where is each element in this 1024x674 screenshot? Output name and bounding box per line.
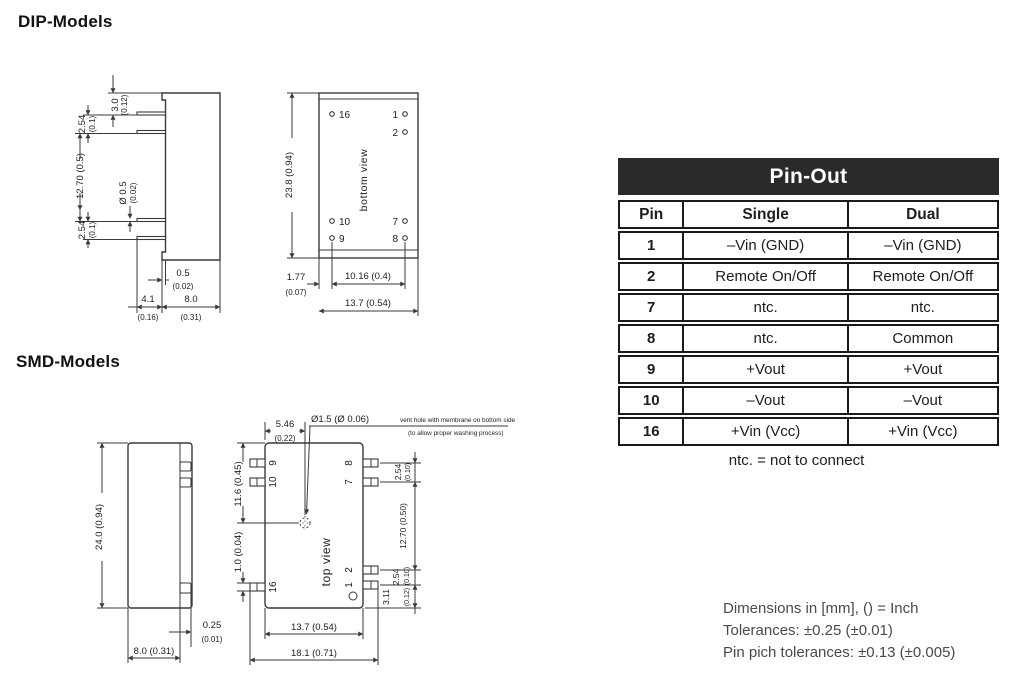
pin-label-10: 10: [268, 476, 279, 488]
cell-single: +Vin (Vcc): [684, 417, 848, 446]
pin-label-7: 7: [344, 479, 355, 485]
pin-label-2: 2: [392, 128, 398, 139]
vent-hole-note: vent hole with membrane on bottom side: [400, 417, 516, 424]
cell-pin: 16: [618, 417, 684, 446]
pin-label-16: 16: [268, 581, 279, 593]
pin-hole-2: [403, 130, 408, 135]
dim-5.46-inch: (0.22): [275, 434, 296, 443]
cell-dual: Common: [849, 324, 999, 353]
dim-2.54-top: 2.54: [77, 115, 88, 134]
pinout-table: Pin Single Dual 1 –Vin (GND) –Vin (GND) …: [618, 198, 999, 448]
table-row: 10 –Vout –Vout: [618, 386, 999, 415]
dip-pin: [137, 112, 166, 115]
pin-label-8: 8: [344, 460, 355, 466]
table-row: 16 +Vin (Vcc) +Vin (Vcc): [618, 417, 999, 446]
dim-8.0: 8.0 (0.31): [134, 646, 175, 657]
dim-2.54-top: 2.54: [393, 463, 403, 480]
cell-pin: 10: [618, 386, 684, 415]
dim-23.8: 23.8 (0.94): [284, 152, 295, 198]
dip-pin: [137, 131, 166, 134]
pin-label-10: 10: [339, 217, 351, 228]
pin-hole-1: [403, 112, 408, 117]
dim-1.77-inch: (0.07): [286, 288, 307, 297]
pin-hole-8: [403, 236, 408, 241]
dim-2.54-top-inch: (0.1): [88, 115, 97, 132]
dim-13.7: 13.7 (0.54): [345, 298, 391, 309]
dim-12.70: 12.70 (0.5): [75, 153, 86, 199]
cell-dual: ntc.: [849, 293, 999, 322]
vent-hole-note2: (to allow proper washing process): [408, 430, 504, 437]
pin-label-8: 8: [392, 234, 398, 245]
note-units: Dimensions in [mm], () = Inch: [723, 598, 955, 620]
dimension-notes: Dimensions in [mm], () = Inch Tolerances…: [723, 598, 955, 664]
pinout-header-row: Pin Single Dual: [618, 200, 999, 229]
col-header-dual: Dual: [849, 200, 999, 229]
dim-2.54-bottom-inch: (0.1): [88, 221, 97, 238]
pin-hole-9: [330, 236, 335, 241]
smd-pad: [180, 478, 191, 487]
cell-dual: –Vin (GND): [849, 231, 999, 260]
table-row: 7 ntc. ntc.: [618, 293, 999, 322]
dip-pin: [137, 237, 166, 240]
cell-pin: 8: [618, 324, 684, 353]
dim-5.46: 5.46: [276, 419, 295, 430]
dim-3.0-inch: (0.12): [120, 94, 129, 115]
dim-pin-diameter: Ø 0.5: [118, 181, 129, 204]
dim-12.70: 12.70 (0.50): [398, 503, 408, 549]
smd-pad: [180, 462, 191, 471]
dim-2.54-top-inch: (0.10): [405, 463, 412, 481]
pin-label-1: 1: [392, 110, 398, 121]
dip-side-body: [137, 93, 220, 260]
pin-label-2: 2: [344, 567, 355, 573]
cell-dual: –Vout: [849, 386, 999, 415]
dim-1.77: 1.77: [287, 272, 306, 283]
bottom-view-label: bottom view: [358, 149, 370, 212]
col-header-single: Single: [684, 200, 848, 229]
cell-single: +Vout: [684, 355, 848, 384]
dim-3.11: 3.11: [381, 589, 391, 605]
smd-side-body: [128, 443, 192, 608]
dip-bottom-view-drawing: 16 1 2 10 9 7 8 bottom view: [270, 60, 460, 360]
smd-models-heading: SMD-Models: [16, 352, 120, 372]
note-tolerances: Tolerances: ±0.25 (±0.01): [723, 620, 955, 642]
smd-pad: [180, 583, 191, 593]
cell-single: Remote On/Off: [684, 262, 848, 291]
cell-pin: 1: [618, 231, 684, 260]
dim-2.54-bottom: 2.54: [77, 221, 88, 240]
dim-8.0: 8.0: [184, 294, 197, 305]
dim-2.54-bottom: 2.54: [391, 568, 401, 585]
dip-pin: [137, 219, 166, 222]
pin-hole-7: [403, 219, 408, 224]
dim-0.5-inch: (0.02): [173, 282, 194, 291]
dim-2.54-bottom-inch: (0.10): [404, 567, 411, 585]
dim-4.1: 4.1: [141, 294, 154, 305]
ntc-footnote: ntc. = not to connect: [606, 452, 987, 469]
cell-single: –Vin (GND): [684, 231, 848, 260]
pinout-table-container: Pin-Out Pin Single Dual 1 –Vin (GND) –Vi…: [618, 158, 999, 469]
dim-0.5: 0.5: [176, 268, 189, 279]
pin-label-9: 9: [268, 460, 279, 466]
cell-pin: 9: [618, 355, 684, 384]
pin-label-16: 16: [339, 110, 351, 121]
pin-label-7: 7: [392, 217, 398, 228]
dip-models-heading: DIP-Models: [18, 12, 113, 32]
dim-24.0: 24.0 (0.94): [95, 504, 105, 550]
dim-1.0: 1.0 (0.04): [233, 532, 244, 573]
col-header-pin: Pin: [618, 200, 684, 229]
pin-hole-16: [330, 112, 335, 117]
cell-dual: Remote On/Off: [849, 262, 999, 291]
smd-side-view-drawing: 24.0 (0.94) 0.25 (0.01) 8.0 (0.31): [95, 435, 235, 670]
dim-0.25-inch: (0.01): [202, 635, 223, 644]
datasheet-page: DIP-Models: [0, 0, 1024, 674]
dim-pin-diameter-inch: (0.02): [129, 182, 138, 203]
cell-dual: +Vout: [849, 355, 999, 384]
cell-pin: 2: [618, 262, 684, 291]
top-view-label: top view: [319, 538, 333, 587]
smd-top-view-drawing: 9 10 16 8 7 2 1 top view: [230, 400, 520, 674]
cell-single: ntc.: [684, 293, 848, 322]
dim-8.0-inch: (0.31): [181, 313, 202, 322]
table-row: 2 Remote On/Off Remote On/Off: [618, 262, 999, 291]
dim-4.1-inch: (0.16): [138, 313, 159, 322]
cell-single: ntc.: [684, 324, 848, 353]
dim-18.1: 18.1 (0.71): [291, 648, 337, 659]
dim-3.11-inch: (0.12): [404, 588, 411, 606]
table-row: 9 +Vout +Vout: [618, 355, 999, 384]
dip-side-view-drawing: 3.0 (0.12) 2.54 (0.1) 12.70 (0.5) Ø 0.5 …: [55, 75, 255, 325]
pin-hole-10: [330, 219, 335, 224]
vent-hole-diameter: Ø1.5 (Ø 0.06): [311, 414, 369, 425]
table-row: 8 ntc. Common: [618, 324, 999, 353]
dim-10.16: 10.16 (0.4): [345, 271, 391, 282]
pin-label-1: 1: [344, 582, 355, 588]
note-pin-pitch-tolerances: Pin pich tolerances: ±0.13 (±0.005): [723, 642, 955, 664]
cell-pin: 7: [618, 293, 684, 322]
cell-dual: +Vin (Vcc): [849, 417, 999, 446]
pin-label-9: 9: [339, 234, 345, 245]
table-row: 1 –Vin (GND) –Vin (GND): [618, 231, 999, 260]
cell-single: –Vout: [684, 386, 848, 415]
pinout-title: Pin-Out: [618, 158, 999, 195]
dim-11.6: 11.6 (0.45): [233, 461, 244, 506]
dim-0.25: 0.25: [203, 620, 222, 631]
dim-13.7: 13.7 (0.54): [291, 622, 337, 633]
